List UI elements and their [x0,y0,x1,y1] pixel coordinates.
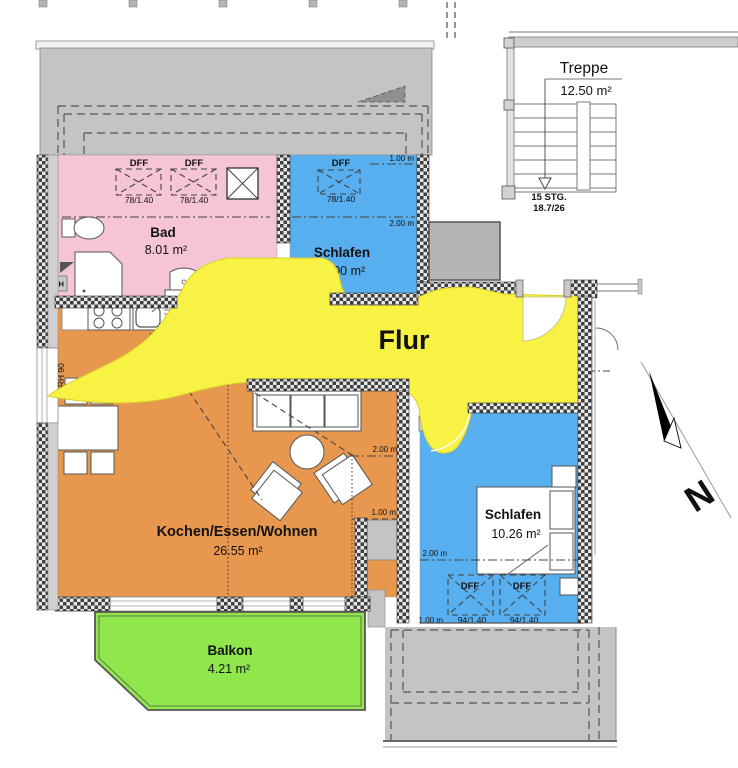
room-balkon: Balkon 4.21 m² [55,597,370,710]
bad-name: Bad [150,225,176,240]
measure-1m-wohnen: 1.00 m [372,508,397,517]
stair-count: 15 STG. [531,192,566,203]
shaft [429,222,500,280]
stair-step-dim: 18.7/26 [533,203,565,214]
skylight-label: DFF [513,581,532,592]
wohnen-name: Kochen/Essen/Wohnen [157,524,318,540]
window-west [37,348,58,423]
skylight-size: 78/1.40 [180,195,209,205]
skylight-label: DFF [185,158,204,169]
treppe-area: 12.50 m² [560,83,612,98]
schlafen-gross-name: Schlafen [485,507,541,522]
measure-2m-schlafen-gross: 2.00 m [423,549,448,558]
sofa-icon [253,391,361,431]
floorplan: Treppe 12.50 m² 15 STG. 18.7/26 DFF 78/1… [0,0,738,768]
pillar-block [367,520,397,560]
skylight-size: 78/1.40 [327,194,356,204]
dimension-ticks [39,0,455,42]
skylight-label: DFF [332,158,351,169]
wohnen-area: 26.55 m² [213,544,262,558]
measure-1m-schlafen-klein: 1.00 m [390,154,415,163]
floorplan-drawing: Treppe 12.50 m² 15 STG. 18.7/26 DFF 78/1… [0,0,738,768]
skylight-label: DFF [461,581,480,592]
stair-stringer [577,102,590,190]
skylight-label: DFF [130,158,149,169]
skylight-size: 78/1.40 [125,195,154,205]
shaft-box-icon [227,168,258,199]
north-arrow: N [641,362,731,520]
side-box-icon [560,578,580,595]
wardrobe-icon [552,466,576,487]
measure-2m-schlafen-klein: 2.00 m [390,219,415,228]
schlafen-gross-area: 10.26 m² [491,527,540,541]
balkon-name: Balkon [207,643,252,658]
treppe-name: Treppe [560,60,609,77]
room-treppe: Treppe 12.50 m² 15 STG. 18.7/26 [502,32,738,214]
toilet-icon [62,217,104,239]
stair-direction-arrow [539,178,551,189]
north-label: N [677,471,721,520]
balkon-area: 4.21 m² [208,662,250,676]
bad-area: 8.01 m² [145,243,187,257]
coffee-table-icon [290,435,324,469]
measure-2m-wohnen: 2.00 m [373,445,398,454]
flur-name: Flur [379,325,430,355]
roof-band-top [36,41,434,155]
stair-treads [514,104,616,192]
measure-1m-schlafen-gross: 1.00 m [419,616,444,625]
